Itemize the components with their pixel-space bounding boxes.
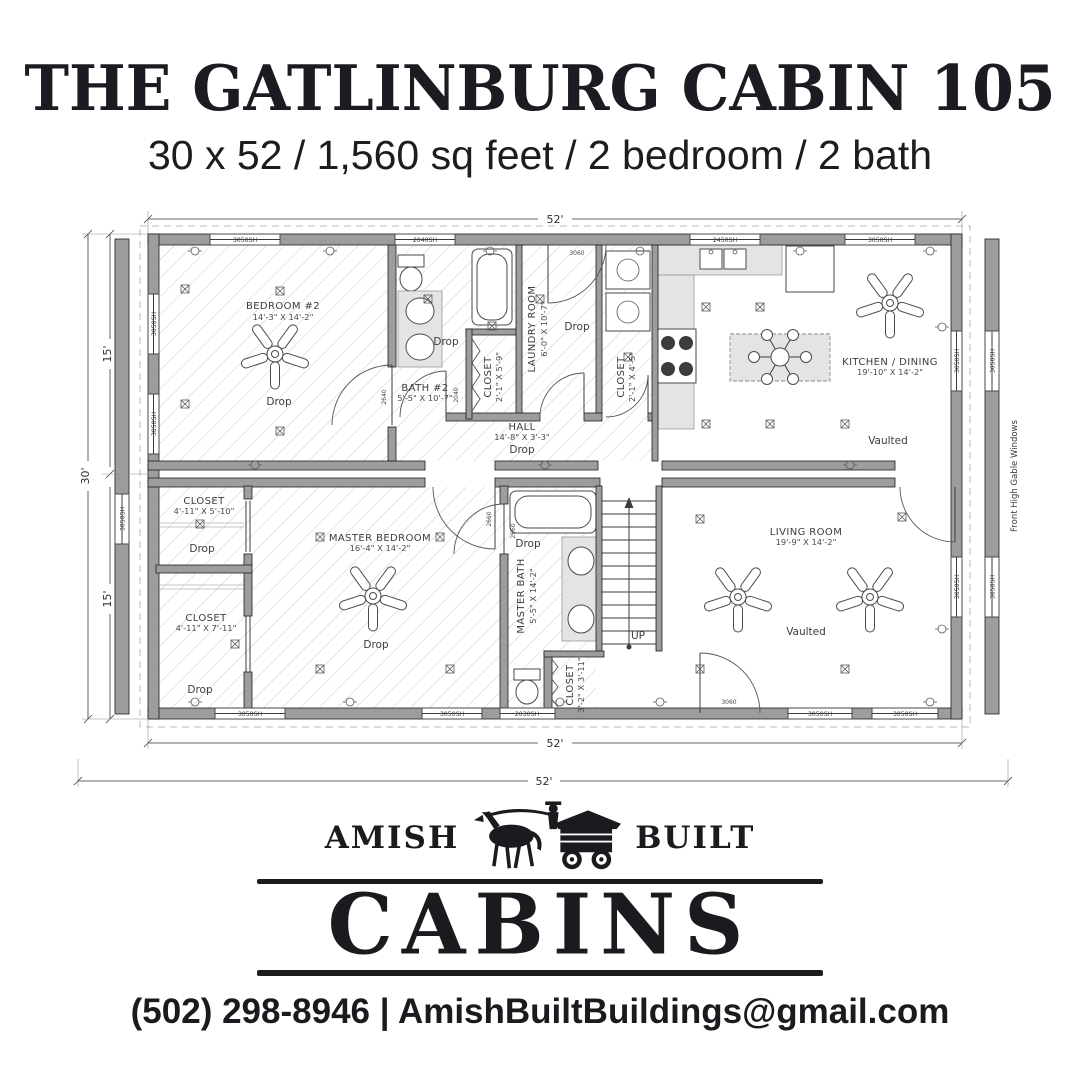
kitchen-fixtures bbox=[656, 245, 834, 429]
window: 3050SH bbox=[148, 394, 159, 454]
dim-overall: 52' bbox=[535, 775, 552, 788]
window-label: 2450SH bbox=[713, 237, 738, 244]
room-dims: 2'-1" X 4'-5" bbox=[627, 352, 637, 402]
gable-note: Front High Gable Windows bbox=[1010, 420, 1020, 532]
window: 3050SH bbox=[951, 331, 962, 391]
room-dims: 2'-1" X 5'-9" bbox=[494, 352, 504, 402]
room-dims: 3'-2" X 3'-11" bbox=[576, 657, 586, 713]
window: 3050SH bbox=[215, 708, 285, 719]
window-label: 3050SH bbox=[120, 506, 127, 531]
stairs bbox=[602, 497, 656, 650]
ceiling-label: Drop bbox=[564, 321, 590, 333]
ceiling-label: Vaulted bbox=[868, 435, 908, 447]
dim-bottom: 52' bbox=[546, 737, 563, 750]
room-name: CLOSET bbox=[483, 356, 494, 398]
window: 3050SH bbox=[148, 294, 159, 354]
door-label: 2640 bbox=[381, 389, 388, 404]
ceiling-label: Drop bbox=[433, 336, 459, 348]
window: 3050SH bbox=[951, 557, 962, 617]
window: 3050SH bbox=[845, 234, 915, 245]
room-dims: 5'-5" X 14'-2" bbox=[528, 568, 538, 624]
window-label: 2040SH bbox=[413, 237, 438, 244]
window: 3050SH bbox=[788, 708, 852, 719]
window: 2030SH bbox=[500, 708, 555, 719]
ceiling-label: Drop bbox=[266, 396, 292, 408]
door-label: 3060 bbox=[569, 250, 584, 257]
stairs-up-label: UP bbox=[631, 630, 645, 642]
window-label: 2030SH bbox=[515, 711, 540, 718]
room-name: BEDROOM #2 bbox=[246, 301, 320, 312]
ceiling-label: Drop bbox=[363, 639, 389, 651]
page: THE GATLINBURG CABIN 105 30 x 52 / 1,560… bbox=[0, 0, 1080, 1080]
room-dims: 4'-11" X 7'-11" bbox=[176, 623, 237, 633]
toilet-tank bbox=[398, 255, 424, 267]
room-dims: 5'-5" X 10'-7" bbox=[397, 393, 453, 403]
ceiling-label: Drop bbox=[187, 684, 213, 696]
ceiling-fan bbox=[855, 272, 924, 338]
contact-line: (502) 298-8946 | AmishBuiltBuildings@gma… bbox=[0, 992, 1080, 1032]
room-dims: 14'-8" X 3'-3" bbox=[494, 432, 550, 442]
window-label: 3050SH bbox=[954, 348, 961, 373]
window-label: 3050SH bbox=[954, 574, 961, 599]
brand-main: CABINS bbox=[328, 883, 753, 968]
window-label: 3050SH bbox=[808, 711, 833, 718]
brand-right: BUILT bbox=[635, 820, 755, 856]
ceiling-fan bbox=[703, 566, 772, 632]
window: 2040SH bbox=[395, 234, 455, 245]
dim-top: 52' bbox=[546, 213, 563, 226]
window-label: 3050SH bbox=[151, 411, 158, 436]
room-dims: 19'-9" X 14'-2" bbox=[776, 537, 837, 547]
floor-plan: 3050SH 2040SH 2450SH 3050SH 3050SH 3050S… bbox=[0, 199, 1080, 795]
window: 3050SH bbox=[422, 708, 482, 719]
dim-left: 30' bbox=[79, 467, 92, 484]
room-name: CLOSET bbox=[565, 664, 576, 706]
page-title: THE GATLINBURG CABIN 105 bbox=[0, 52, 1080, 126]
toilet bbox=[516, 680, 538, 704]
window-label: 3050SH bbox=[990, 574, 997, 599]
room-dims: 14'-3" X 14'-2" bbox=[253, 312, 314, 322]
door-label: 2040 bbox=[453, 387, 460, 402]
header: THE GATLINBURG CABIN 105 30 x 52 / 1,560… bbox=[0, 54, 1080, 179]
ceiling-label: Drop bbox=[515, 538, 541, 550]
brand-row: AMISH bbox=[325, 797, 756, 879]
window: 3050SH bbox=[872, 708, 938, 719]
ceiling-fan bbox=[835, 566, 904, 632]
window: 2450SH bbox=[690, 234, 760, 245]
room-name: CLOSET bbox=[616, 356, 627, 398]
window-label: 3050SH bbox=[233, 237, 258, 244]
room-dims: 19'-10" X 14'-2" bbox=[857, 367, 923, 377]
room-name: MASTER BATH bbox=[516, 558, 527, 633]
door-label: 3060 bbox=[721, 699, 736, 706]
room-dims: 16'-4" X 14'-2" bbox=[350, 543, 411, 553]
floor-plan-drawing: 3050SH 2040SH 2450SH 3050SH 3050SH 3050S… bbox=[0, 199, 1080, 795]
page-subtitle: 30 x 52 / 1,560 sq feet / 2 bedroom / 2 … bbox=[0, 132, 1080, 179]
brand-logo: AMISH bbox=[0, 797, 1080, 976]
window-label: 3050SH bbox=[868, 237, 893, 244]
window: 3050SH bbox=[210, 234, 280, 245]
window-label: 3050SH bbox=[990, 348, 997, 373]
room-dims: 4'-11" X 5'-10" bbox=[174, 506, 235, 516]
horse-wagon-icon bbox=[471, 797, 623, 879]
washer bbox=[606, 251, 650, 289]
window-label: 3050SH bbox=[238, 711, 263, 718]
ceiling-label: Vaulted bbox=[786, 626, 826, 638]
refrigerator bbox=[786, 246, 834, 292]
dim-upper: 15' bbox=[101, 345, 114, 362]
stove bbox=[656, 329, 696, 383]
window-label: 3050SH bbox=[893, 711, 918, 718]
door-label: 2660 bbox=[486, 511, 493, 526]
window-label: 3050SH bbox=[440, 711, 465, 718]
ceiling-label: Drop bbox=[509, 444, 535, 456]
toilet-tank bbox=[514, 669, 540, 680]
dryer bbox=[606, 293, 650, 331]
room-name: LAUNDRY ROOM bbox=[527, 286, 538, 373]
ceiling-label: Drop bbox=[189, 543, 215, 555]
toilet bbox=[400, 267, 422, 291]
room-dims: 6'-0" X 10'-7" bbox=[539, 301, 549, 357]
brand-left: AMISH bbox=[325, 820, 460, 856]
door-label: 2660 bbox=[510, 523, 517, 538]
dim-lower: 15' bbox=[101, 590, 114, 607]
window-label: 3050SH bbox=[151, 311, 158, 336]
